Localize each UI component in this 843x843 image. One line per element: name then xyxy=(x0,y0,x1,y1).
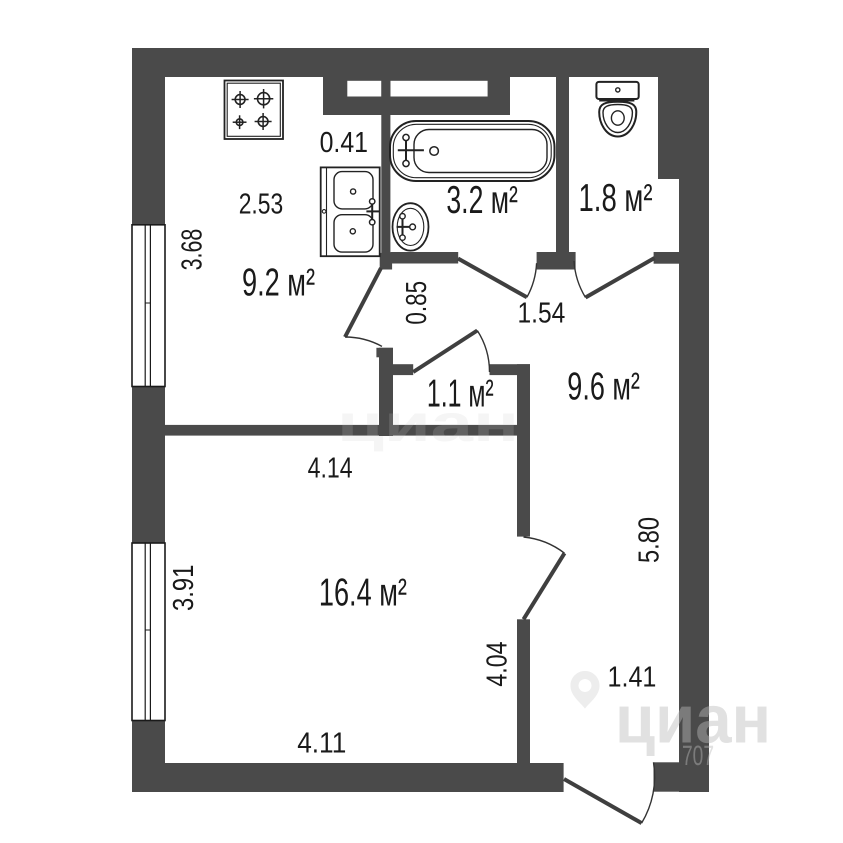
svg-text:4.04: 4.04 xyxy=(481,642,513,687)
svg-text:3.91: 3.91 xyxy=(168,565,200,611)
svg-text:4.14: 4.14 xyxy=(308,453,353,485)
svg-text:16.4 м²: 16.4 м² xyxy=(319,572,407,615)
svg-text:3.68: 3.68 xyxy=(176,229,208,271)
svg-text:5.80: 5.80 xyxy=(633,517,665,563)
svg-text:1.54: 1.54 xyxy=(518,298,566,330)
svg-text:4.11: 4.11 xyxy=(297,728,346,760)
svg-text:циан: циан xyxy=(337,395,519,453)
svg-text:9.6 м²: 9.6 м² xyxy=(567,365,640,408)
svg-text:0.85: 0.85 xyxy=(401,281,433,325)
svg-text:2.53: 2.53 xyxy=(239,189,284,221)
svg-text:1.8 м²: 1.8 м² xyxy=(579,177,653,220)
svg-text:707: 707 xyxy=(682,740,714,771)
svg-text:3.2 м²: 3.2 м² xyxy=(446,179,518,222)
svg-text:0.41: 0.41 xyxy=(320,127,368,159)
svg-text:9.2 м²: 9.2 м² xyxy=(242,261,315,304)
